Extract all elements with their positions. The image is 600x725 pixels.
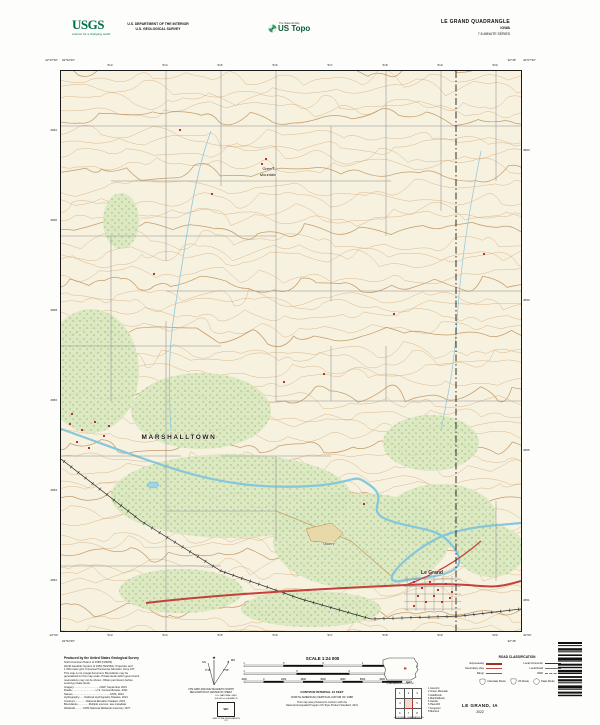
building bbox=[449, 597, 451, 599]
barcode-bar bbox=[558, 658, 582, 661]
grid-tick-bottom: 513 bbox=[104, 633, 116, 637]
corner-coordinate-bl-lon: 92°52′30″ bbox=[62, 639, 94, 643]
adjoining-grid-table: 12345678 bbox=[395, 688, 422, 719]
building bbox=[441, 601, 443, 603]
building bbox=[393, 313, 395, 315]
scale-bar-segment bbox=[244, 665, 284, 667]
building bbox=[76, 441, 78, 443]
grid-tick-top: 517 bbox=[324, 63, 336, 67]
building bbox=[103, 435, 105, 437]
building bbox=[413, 605, 415, 607]
grid-tick-bottom: 514 bbox=[159, 633, 171, 637]
usgs-logo: USGS science for a changing world bbox=[72, 17, 110, 36]
building bbox=[71, 413, 73, 415]
usgs-tagline: science for a changing world bbox=[72, 32, 110, 36]
department-heading: U.S. DEPARTMENT OF THE INTERIOR U.S. GEO… bbox=[112, 22, 204, 31]
grid-tick-top: 515 bbox=[214, 63, 226, 67]
corner-coordinate-tl-lon: 92°52′30″ bbox=[62, 58, 94, 62]
building bbox=[81, 429, 83, 431]
barcode-bar bbox=[558, 667, 582, 668]
route-shield-interstate: Interstate Route bbox=[479, 678, 505, 685]
usgs-logo-text: USGS bbox=[72, 17, 110, 33]
building bbox=[211, 193, 213, 195]
scale-bar-segment bbox=[244, 673, 297, 675]
adjoining-grid-cell: 4 bbox=[396, 699, 405, 709]
barcode-bar bbox=[558, 651, 582, 652]
barcode-bar bbox=[558, 664, 582, 666]
sheet-name-block: LE GRAND, IA 2022 bbox=[420, 703, 540, 714]
scale-tick-label: 1000 bbox=[241, 678, 247, 681]
scale-bar-segment bbox=[343, 681, 363, 683]
barcode bbox=[556, 642, 584, 700]
barcode-bar bbox=[558, 685, 582, 688]
grid-tick-right: 4659 bbox=[523, 298, 540, 302]
quadrangle-location-marker bbox=[404, 668, 406, 670]
scale-bar-segment bbox=[284, 665, 324, 667]
barcode-bar bbox=[558, 689, 582, 690]
title-state: IOWA bbox=[360, 26, 510, 31]
barcode-bar bbox=[558, 679, 582, 681]
state-shield-icon bbox=[533, 678, 540, 685]
corner-coordinate-tr-lon: 92°45′ bbox=[488, 58, 516, 62]
place-label: Green bbox=[262, 166, 273, 171]
pond bbox=[147, 482, 159, 488]
title-series: 7.5-MINUTE SERIES bbox=[360, 32, 510, 37]
grid-tick-bottom: 520 bbox=[489, 633, 501, 637]
barcode-bar bbox=[558, 676, 582, 678]
adjoining-quadrangles-grid: 12345678 bbox=[395, 688, 422, 715]
grid-north-line bbox=[208, 663, 214, 685]
ustopo-logo: The National Map US Topo bbox=[268, 22, 328, 33]
road-class-label: Ramp bbox=[458, 671, 484, 676]
vegetation-patch bbox=[119, 569, 243, 613]
building bbox=[69, 423, 71, 425]
building bbox=[451, 591, 453, 593]
conform-line-2: National Geospatial Program US Topo Prod… bbox=[224, 704, 420, 707]
building bbox=[88, 447, 90, 449]
grid-tick-bottom: 515 bbox=[214, 633, 226, 637]
building bbox=[108, 425, 110, 427]
scale-tick-label: 1 bbox=[243, 670, 245, 673]
scale-tick-label: 2000 bbox=[301, 678, 307, 681]
vertical-datum: NORTH AMERICAN VERTICAL DATUM OF 1988 bbox=[224, 695, 420, 699]
adjoining-grid-cell: 3 bbox=[413, 689, 422, 699]
grid-tick-bottom: 516 bbox=[269, 633, 281, 637]
grid-tick-top: 518 bbox=[379, 63, 391, 67]
corner-coordinate-br: 42°00′ bbox=[523, 633, 555, 637]
place-label: Quarry bbox=[323, 542, 334, 546]
scale-tick-label: 5000 bbox=[360, 678, 366, 681]
production-credits: Produced by the United States Geological… bbox=[64, 656, 194, 710]
road-class-sample-ramp bbox=[486, 673, 502, 674]
grid-tick-right: 4651 bbox=[523, 598, 540, 602]
place-label: MARSHALLTOWN bbox=[142, 434, 217, 441]
adjoining-quadrangles-caption: ADJOINING QUADRANGLES bbox=[378, 717, 440, 719]
scale-tick-label: 3000 bbox=[320, 678, 326, 681]
scale-tick-label: .5 bbox=[296, 670, 299, 673]
road-class-sample-secondary bbox=[486, 668, 502, 669]
scale-bar-segment bbox=[284, 681, 304, 683]
sheet-year: 2022 bbox=[420, 710, 540, 714]
route-shield-us: US Route bbox=[510, 678, 529, 685]
building bbox=[283, 381, 285, 383]
declination-label-gnv: 0°16′ bbox=[205, 668, 211, 672]
route-shield-label: Interstate Route bbox=[487, 680, 505, 683]
grid-tick-right: 4663 bbox=[523, 148, 540, 152]
building bbox=[94, 421, 96, 423]
building bbox=[261, 163, 263, 165]
grid-tick-bottom: 518 bbox=[379, 633, 391, 637]
scale-tick-label: 1000 bbox=[281, 678, 287, 681]
corner-coordinate-tl: 42°07′30″ bbox=[28, 58, 58, 62]
usgs-topo-sheet: USGS science for a changing world U.S. D… bbox=[0, 0, 600, 725]
topo-map-canvas: MARSHALLTOWNGreenMountainQuarryLe Grand bbox=[61, 71, 521, 631]
grid-tick-left: 4652 bbox=[40, 578, 57, 582]
building bbox=[363, 503, 365, 505]
scale-bar-segment bbox=[323, 681, 343, 683]
produced-by-line: Produced by the United States Geological… bbox=[64, 656, 194, 660]
scale-tick-label: 4000 bbox=[340, 678, 346, 681]
building bbox=[179, 129, 181, 131]
map-area: MARSHALLTOWNGreenMountainQuarryLe Grand bbox=[60, 70, 522, 632]
title-quadrangle: LE GRAND QUADRANGLE bbox=[360, 20, 510, 25]
grid-tick-left: 4656 bbox=[40, 398, 57, 402]
adjoining-grid-center bbox=[404, 699, 413, 709]
scale-bar-segment bbox=[297, 673, 350, 675]
building bbox=[429, 581, 431, 583]
us-shield-icon bbox=[510, 678, 517, 685]
grid-tick-left: 4654 bbox=[40, 488, 57, 492]
building bbox=[265, 158, 267, 160]
barcode-bar bbox=[558, 692, 582, 694]
building bbox=[323, 373, 325, 375]
corner-coordinate-bl: 42°00′ bbox=[28, 633, 58, 637]
grid-tick-top: 520 bbox=[489, 63, 501, 67]
sheet-name: LE GRAND, IA bbox=[420, 703, 540, 708]
state-locator-map bbox=[380, 654, 420, 684]
route-shield-label: State Route bbox=[541, 680, 555, 683]
adjoining-grid-cell: 1 bbox=[396, 689, 405, 699]
building bbox=[421, 587, 423, 589]
grid-tick-bottom: 517 bbox=[324, 633, 336, 637]
corner-coordinate-br-lon: 92°45′ bbox=[488, 639, 516, 643]
adjoining-grid-cell: 2 bbox=[404, 689, 413, 699]
scale-tick-label: 0 bbox=[263, 678, 265, 681]
road-class-row: Ramp bbox=[458, 671, 517, 676]
barcode-bar bbox=[558, 673, 582, 674]
building bbox=[413, 581, 415, 583]
grid-tick-left: 4660 bbox=[40, 218, 57, 222]
road-class-label: 4WD bbox=[517, 671, 543, 676]
grid-tick-top: 514 bbox=[159, 63, 171, 67]
usng-zone: 15T bbox=[196, 720, 256, 723]
vegetation-patch bbox=[241, 591, 381, 627]
scale-bar-segment bbox=[244, 681, 264, 683]
vegetation-patch bbox=[383, 415, 479, 471]
grid-tick-left: 4662 bbox=[40, 128, 57, 132]
declination-label-gn: GN bbox=[202, 660, 206, 664]
scale-tick-label: 0 bbox=[322, 662, 324, 665]
dept-line-2: U.S. GEOLOGICAL SURVEY bbox=[112, 27, 204, 32]
grid-tick-right: 4655 bbox=[523, 448, 540, 452]
place-label: Le Grand bbox=[421, 570, 443, 576]
barcode-bar bbox=[558, 642, 582, 644]
building bbox=[425, 601, 427, 603]
barcode-bar bbox=[558, 682, 582, 683]
scale-bar-segment bbox=[303, 681, 323, 683]
building bbox=[445, 583, 447, 585]
building bbox=[437, 589, 439, 591]
barcode-bar bbox=[558, 695, 582, 697]
ustopo-pinwheel-icon bbox=[268, 24, 277, 33]
credit-line: Wetlands...........FWS National Wetlands… bbox=[64, 707, 194, 711]
true-north-star: ★ bbox=[212, 655, 216, 660]
barcode-bar bbox=[558, 661, 582, 662]
barcode-bar bbox=[558, 654, 582, 656]
barcode-bar bbox=[558, 645, 582, 646]
state-map-caption: QUADRANGLE LOCATION bbox=[370, 683, 430, 685]
ustopo-brand: US Topo bbox=[278, 24, 328, 33]
contour-interval-block: CONTOUR INTERVAL 10 FEET NORTH AMERICAN … bbox=[224, 690, 420, 707]
barcode-bar bbox=[558, 648, 582, 650]
building bbox=[417, 595, 419, 597]
place-label: Mountain bbox=[260, 172, 276, 177]
grid-tick-bottom: 519 bbox=[434, 633, 446, 637]
grid-tick-top: 516 bbox=[269, 63, 281, 67]
grid-tick-left: 4658 bbox=[40, 308, 57, 312]
scale-bar-segment bbox=[264, 681, 284, 683]
scale-tick-label: 1 bbox=[243, 662, 245, 665]
grid-tick-top: 513 bbox=[104, 63, 116, 67]
vegetation-patch bbox=[103, 193, 139, 249]
interstate-shield-icon bbox=[479, 678, 486, 685]
sheet-title: LE GRAND QUADRANGLE IOWA 7.5-MINUTE SERI… bbox=[360, 20, 510, 37]
road-class-sample-expressway bbox=[486, 663, 502, 665]
scale-tick-label: .5 bbox=[283, 662, 286, 665]
building bbox=[153, 273, 155, 275]
route-shield-label: US Route bbox=[518, 680, 529, 683]
corner-coordinate-tr: 42°07′30″ bbox=[523, 58, 555, 62]
scale-tick-label: 0 bbox=[349, 670, 351, 673]
iowa-outline bbox=[383, 658, 418, 680]
scale-tick-label: 1 bbox=[362, 662, 364, 665]
contour-interval: CONTOUR INTERVAL 10 FEET bbox=[224, 690, 420, 694]
building bbox=[433, 595, 435, 597]
scale-bar-segment bbox=[323, 665, 363, 667]
barcode-bar bbox=[558, 670, 582, 673]
building bbox=[483, 253, 485, 255]
route-shield-state: State Route bbox=[533, 678, 555, 685]
grid-tick-top: 519 bbox=[434, 63, 446, 67]
